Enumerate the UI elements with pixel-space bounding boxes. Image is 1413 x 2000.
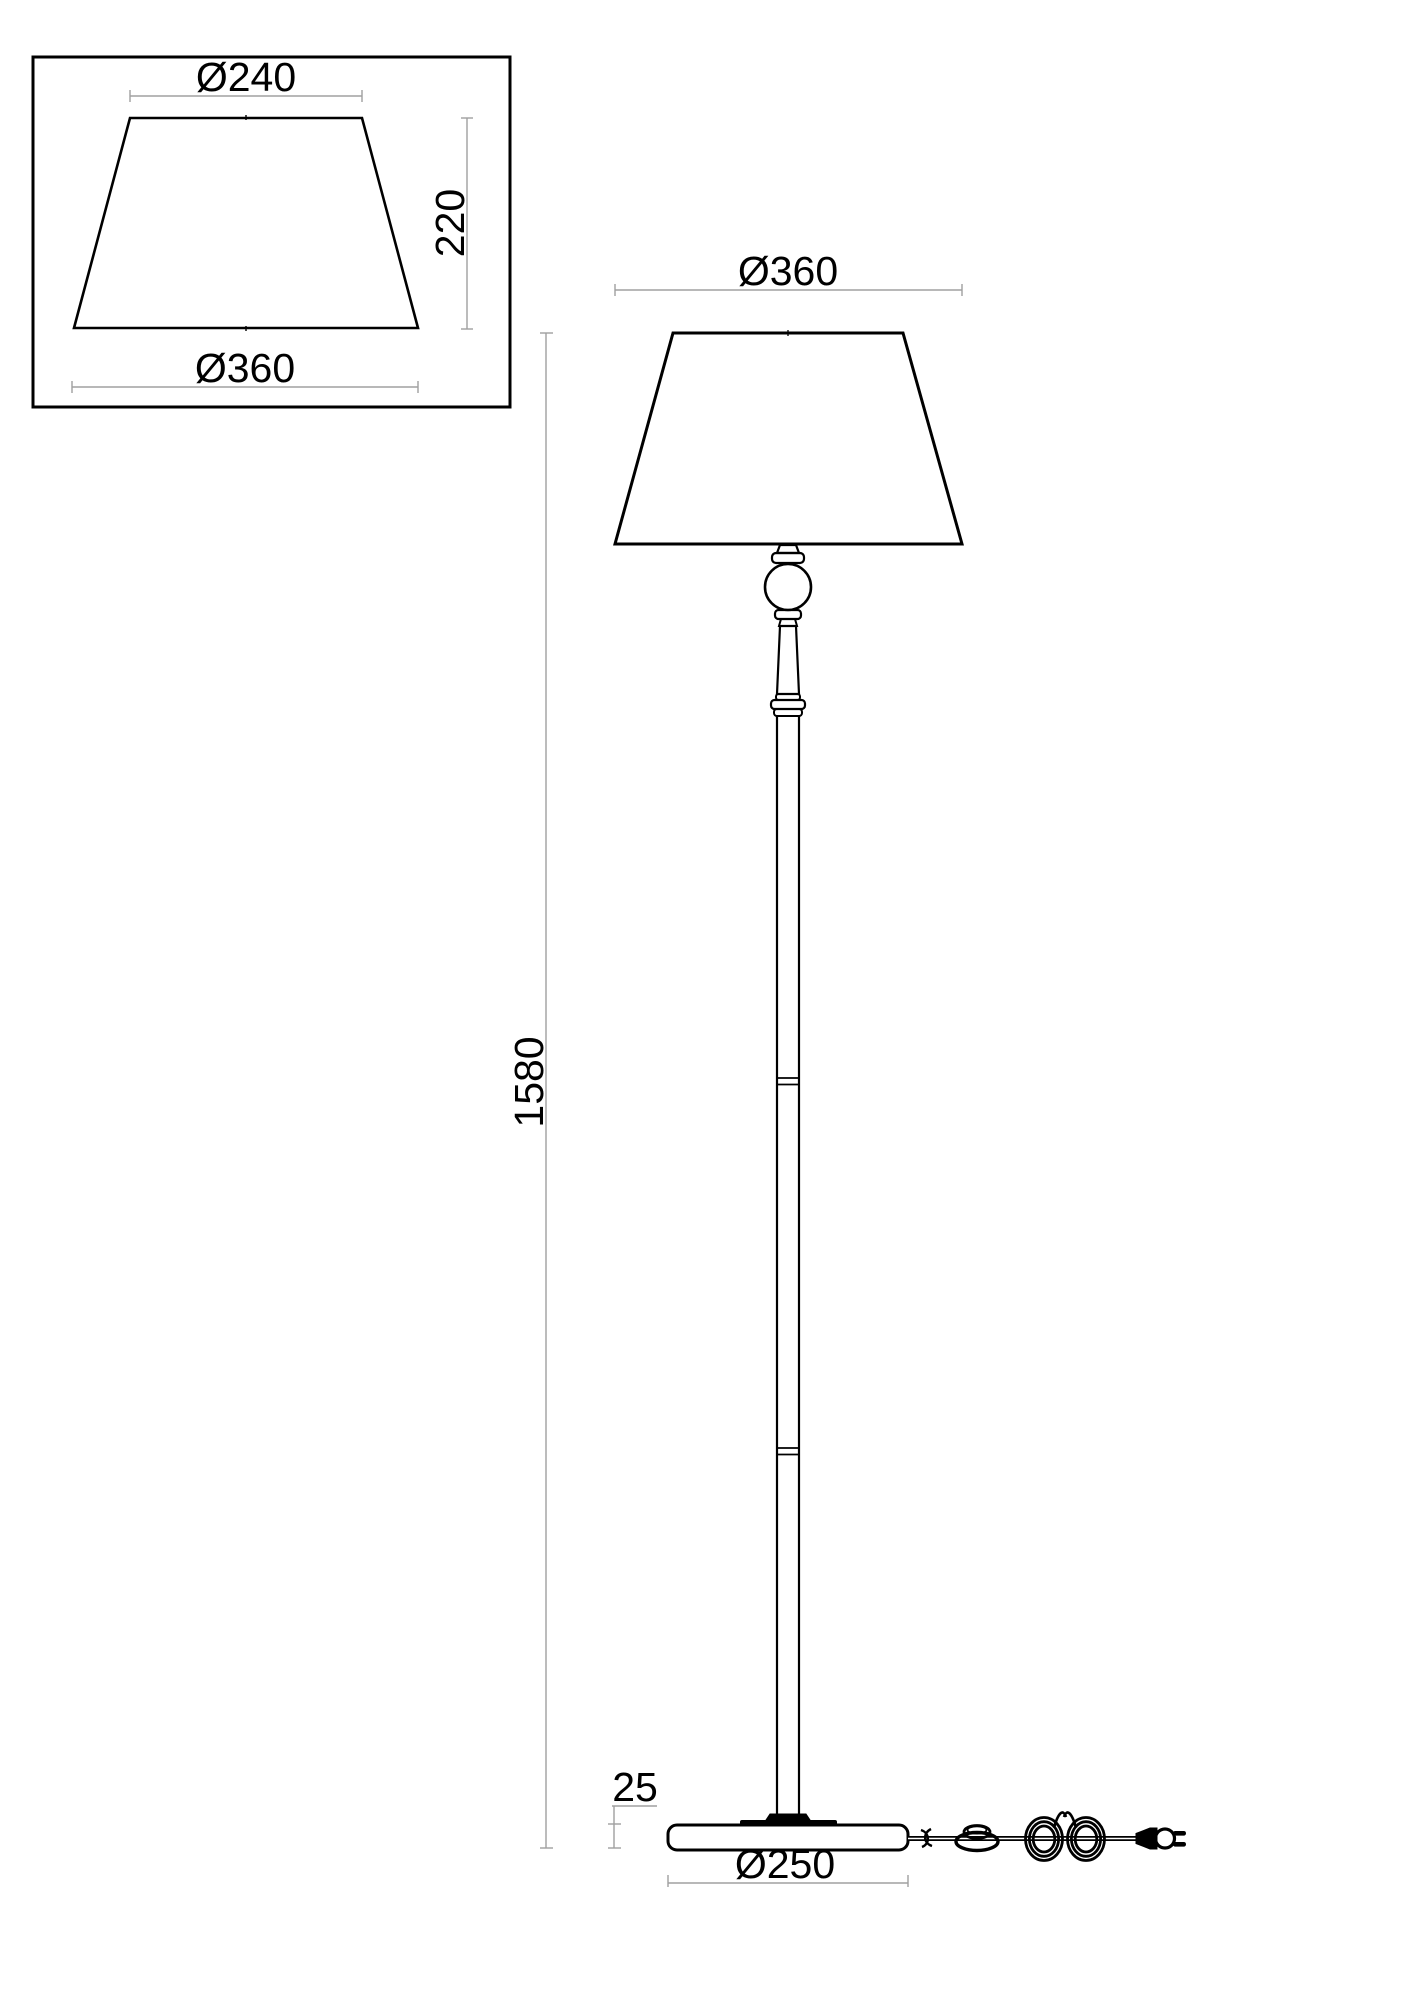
lamp-shade-diameter-label: Ø360 [738,248,838,294]
shade-bottom-diameter-label: Ø360 [195,345,295,391]
stem-joint-upper [776,1078,800,1085]
column-foot-ring-2 [771,700,805,709]
lamp-neck [765,545,811,716]
base-height-label: 25 [612,1764,658,1810]
dim-shade-height: 220 [427,118,473,329]
power-plug [1136,1828,1186,1849]
dim-shade-bottom-diameter: Ø360 [72,345,418,393]
technical-drawing-page: Ø240 220 Ø360 Ø360 [0,0,1413,2000]
lamp-ball [765,564,811,610]
plug-prong-bottom [1173,1842,1186,1847]
neck-cup [777,545,799,553]
detail-shade-outline [74,118,418,328]
lamp-stem [776,716,800,1818]
lampshade-outline [615,333,962,544]
plug-body [1136,1828,1157,1849]
shade-detail-view: Ø240 220 Ø360 [33,54,510,407]
dim-base-diameter: Ø250 [668,1841,908,1887]
dim-total-height: 1580 [506,333,553,1848]
power-cord-assembly [908,1813,1186,1861]
floor-lamp-technical-drawing: Ø240 220 Ø360 Ø360 [0,0,1413,2000]
base-diameter-label: Ø250 [735,1841,835,1887]
plug-head [1156,1829,1175,1848]
ball-collar [775,610,801,619]
dim-base-height: 25 [608,1764,658,1848]
total-height-label: 1580 [506,1036,552,1127]
shade-top-diameter-label: Ø240 [196,54,296,100]
switch-housing [956,1833,998,1851]
dim-lamp-shade-diameter: Ø360 [615,248,962,296]
stem-joint-lower [776,1448,800,1455]
dim-shade-top-diameter: Ø240 [130,54,362,102]
lamp-column [777,626,799,694]
plug-prong-top [1173,1831,1186,1836]
floor-lamp-view: Ø360 [506,248,962,1887]
neck-ring [772,553,804,563]
shade-height-label: 220 [427,189,473,257]
